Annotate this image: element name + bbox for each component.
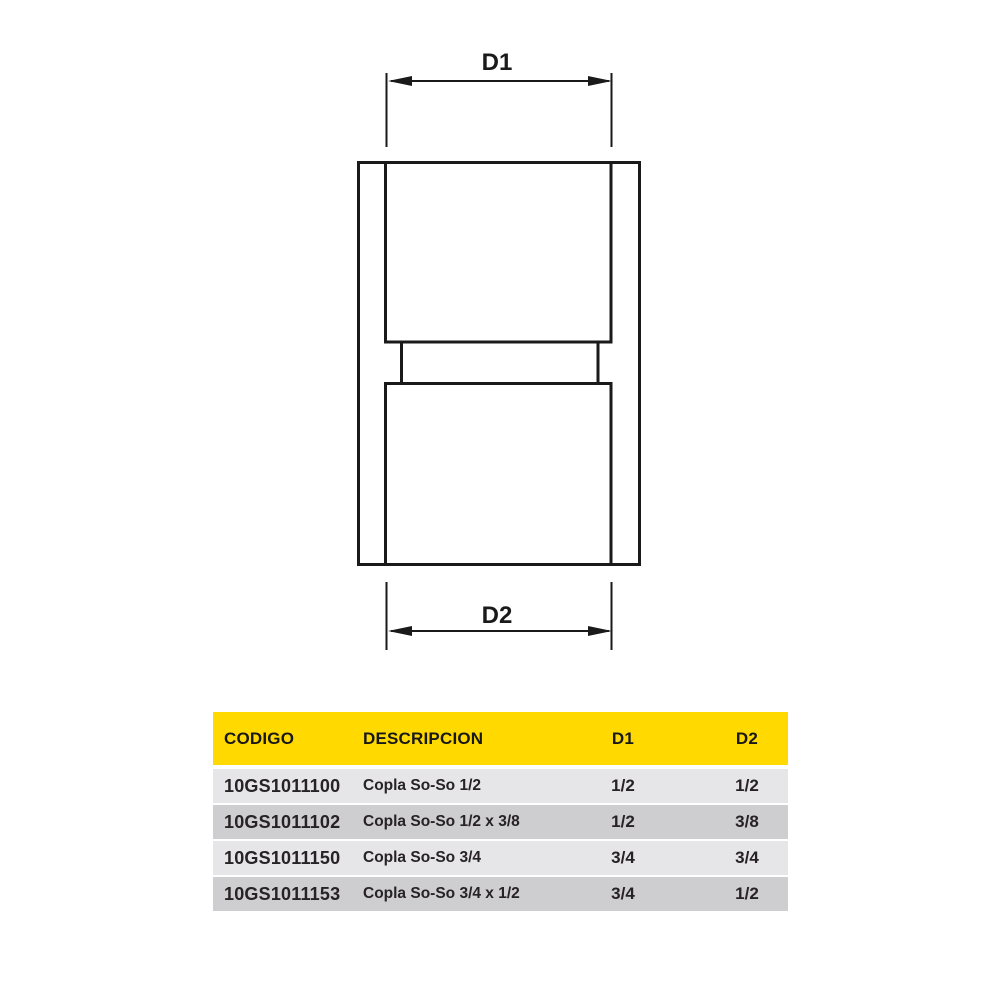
codigo-cell: 10GS1011100 (213, 776, 363, 797)
d1-cell: 3/4 (540, 848, 706, 868)
d2-arrowhead-right (588, 626, 612, 636)
spec-table-header-row: CODIGO DESCRIPCION D1 D2 (213, 712, 788, 765)
spec-table: CODIGO DESCRIPCION D1 D2 10GS1011100 Cop… (213, 712, 788, 913)
codigo-cell: 10GS1011153 (213, 884, 363, 905)
d1-dimension-label: D1 (482, 49, 513, 76)
coupling-center-stop (402, 342, 599, 384)
codigo-cell: 10GS1011102 (213, 812, 363, 833)
header-codigo: CODIGO (213, 729, 363, 749)
table-row: 10GS1011100 Copla So-So 1/2 1/2 1/2 (213, 769, 788, 803)
coupling-top-socket (386, 163, 612, 343)
table-row: 10GS1011150 Copla So-So 3/4 3/4 3/4 (213, 841, 788, 875)
d2-cell: 3/4 (706, 848, 788, 868)
catalog-page: D1 D2 CODIGO DESCRIPCION D1 D2 10GS10111… (0, 0, 1000, 1000)
table-row: 10GS1011102 Copla So-So 1/2 x 3/8 1/2 3/… (213, 805, 788, 839)
descripcion-cell: Copla So-So 1/2 x 3/8 (363, 813, 540, 831)
header-d2: D2 (706, 729, 788, 749)
coupling-technical-drawing: D1 D2 (0, 0, 1000, 690)
header-descripcion: DESCRIPCION (363, 729, 540, 749)
table-row: 10GS1011153 Copla So-So 3/4 x 1/2 3/4 1/… (213, 877, 788, 911)
d2-cell: 1/2 (706, 776, 788, 796)
d1-arrowhead-left (388, 76, 412, 86)
d2-dimension-label: D2 (482, 602, 513, 629)
header-d1: D1 (540, 729, 706, 749)
d1-cell: 1/2 (540, 812, 706, 832)
d2-cell: 3/8 (706, 812, 788, 832)
descripcion-cell: Copla So-So 1/2 (363, 777, 540, 795)
d2-arrowhead-left (388, 626, 412, 636)
codigo-cell: 10GS1011150 (213, 848, 363, 869)
coupling-bottom-socket (386, 384, 612, 565)
d1-arrowhead-right (588, 76, 612, 86)
d2-cell: 1/2 (706, 884, 788, 904)
d1-cell: 1/2 (540, 776, 706, 796)
descripcion-cell: Copla So-So 3/4 (363, 849, 540, 867)
descripcion-cell: Copla So-So 3/4 x 1/2 (363, 885, 540, 903)
d1-cell: 3/4 (540, 884, 706, 904)
